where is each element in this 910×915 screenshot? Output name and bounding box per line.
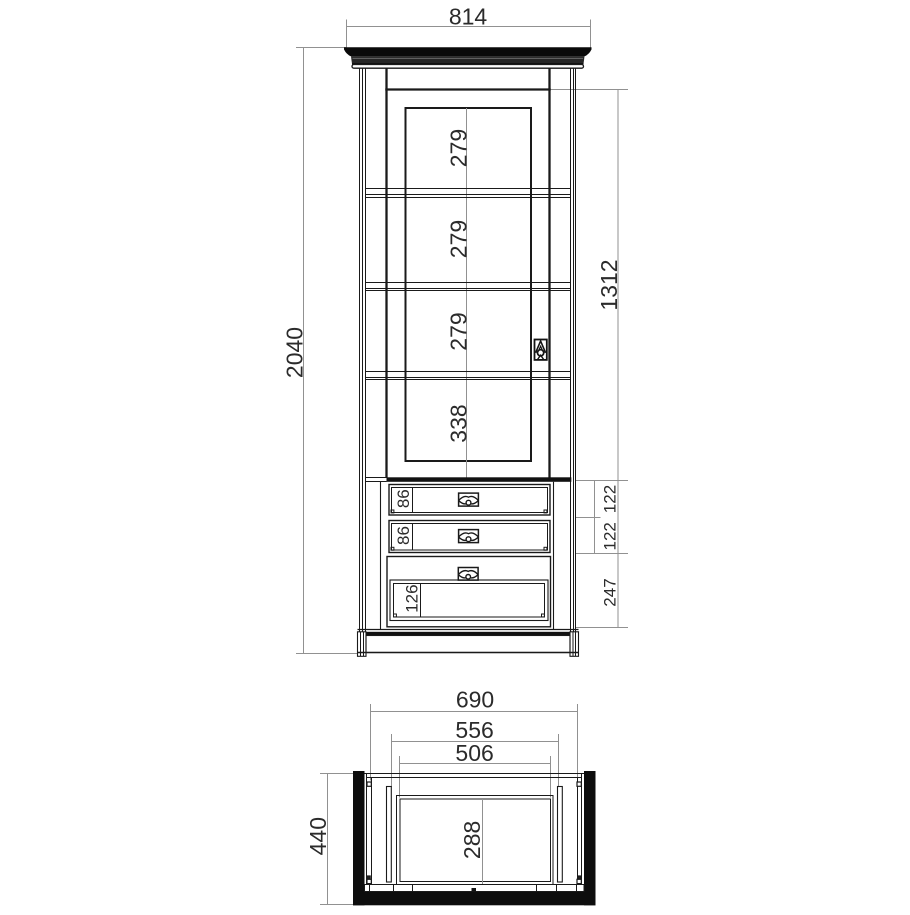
svg-text:506: 506	[455, 740, 493, 766]
svg-text:279: 279	[446, 220, 472, 258]
svg-text:126: 126	[403, 584, 422, 612]
svg-text:247: 247	[601, 578, 620, 606]
svg-text:338: 338	[446, 404, 472, 442]
svg-text:690: 690	[456, 686, 494, 712]
svg-text:2040: 2040	[282, 327, 308, 378]
svg-text:279: 279	[446, 129, 472, 167]
svg-text:440: 440	[305, 817, 331, 855]
svg-text:86: 86	[394, 526, 413, 545]
svg-text:122: 122	[601, 522, 620, 550]
svg-text:1312: 1312	[596, 259, 622, 310]
svg-text:814: 814	[449, 4, 488, 30]
svg-text:122: 122	[601, 485, 620, 513]
svg-text:279: 279	[446, 312, 472, 350]
svg-text:86: 86	[394, 489, 413, 508]
svg-text:288: 288	[459, 821, 485, 859]
